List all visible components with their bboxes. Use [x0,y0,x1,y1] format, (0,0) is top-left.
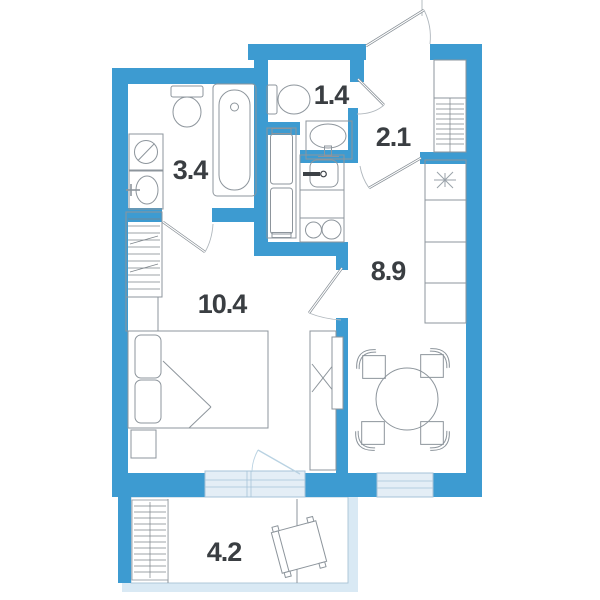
room-label-balcony: 4.2 [207,537,242,567]
stove-icon [306,220,342,239]
hall-closet-icon [434,60,466,152]
chair-icon [350,343,397,390]
room-label-hallway: 2.1 [376,122,412,152]
balcony-storage-hatch [132,500,168,580]
floor-plan: 3.4 1.4 2.1 8.9 10.4 4.2 [0,0,600,600]
bedroom-wardrobe-icon [126,212,162,297]
tall-cabinet-icon [267,128,296,238]
bedroom-shelf [126,297,158,331]
kitchen-window [377,473,433,497]
hall-kitchen-door [360,158,421,188]
entrance-door [366,10,430,46]
chair-icon [409,410,456,457]
toilet-icon-wc [267,85,310,114]
dining-chairs [349,342,457,458]
toilet-icon-bathroom [171,86,203,127]
balcony-door-swing [252,450,300,474]
bathroom-door [163,222,213,252]
tv-panel [332,337,343,409]
nightstand [131,430,156,458]
kitchen-sink-icon [303,160,338,187]
room-label-bathroom: 3.4 [173,155,209,185]
bed-icon [128,331,268,428]
wc-door [357,79,384,114]
cooker-star-icon [434,172,456,188]
floor-plan-canvas: 3.4 1.4 2.1 8.9 10.4 4.2 [0,0,600,600]
bedroom-door [309,268,342,320]
bathtub-icon [213,84,256,196]
room-label-wc: 1.4 [314,80,350,110]
room-label-kitchen-living: 8.9 [371,256,407,286]
balcony-door-window [205,471,305,497]
washing-machine-icon [129,134,163,170]
bathroom-sink-icon [126,171,163,209]
room-label-bedroom: 10.4 [198,289,248,319]
chair-icon [349,410,396,457]
